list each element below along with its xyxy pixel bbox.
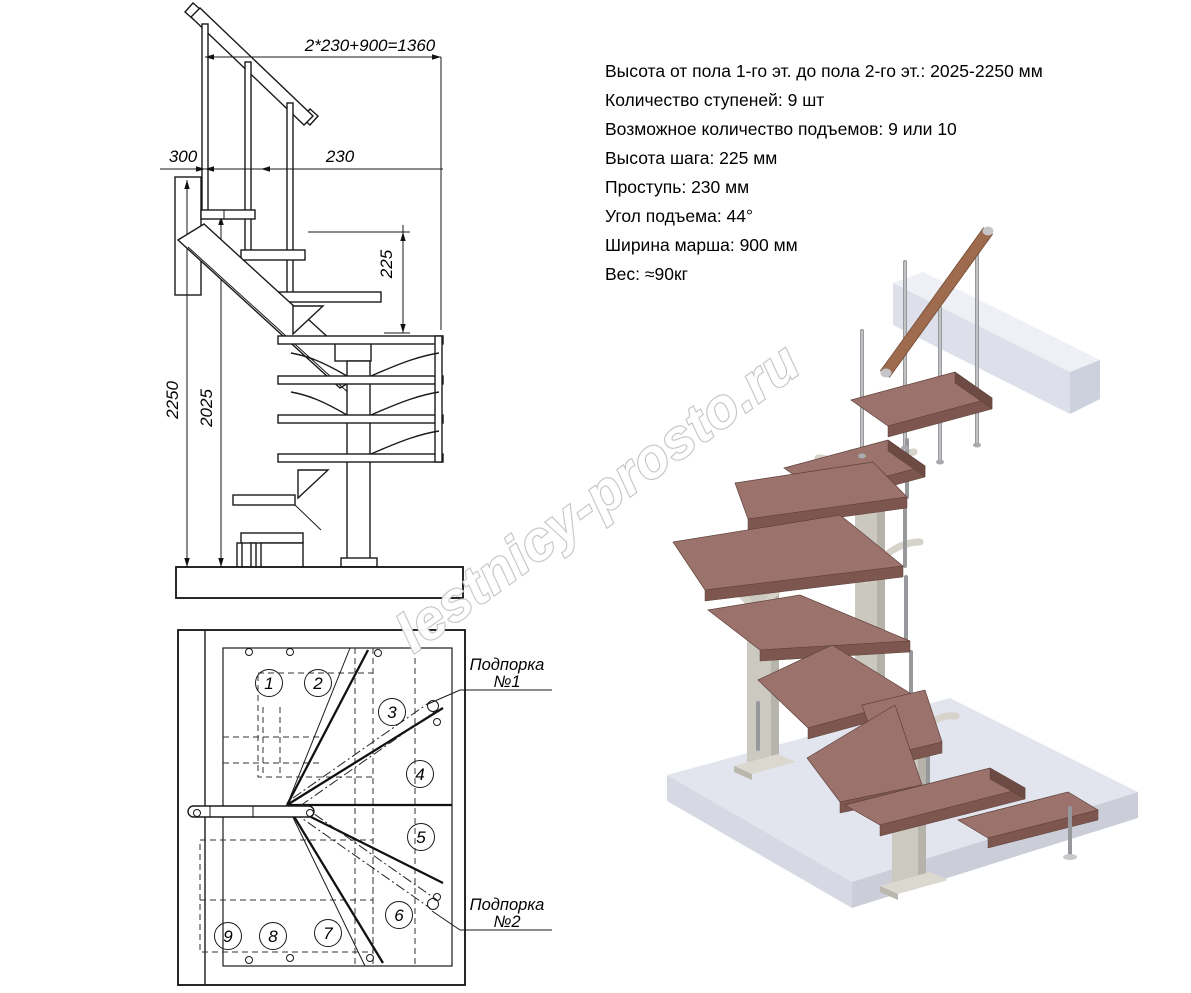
callout-1-line1: Подпорка bbox=[470, 656, 545, 674]
dim-label-2025: 2025 bbox=[197, 389, 216, 428]
dim-label-230: 230 bbox=[325, 147, 355, 166]
step-number-8: 8 bbox=[268, 927, 278, 946]
spec-line-tread: Проступь: 230 мм bbox=[605, 173, 1165, 202]
handrail-end-cap-lower bbox=[881, 369, 892, 378]
tread-9 bbox=[851, 372, 992, 437]
elevation-base-slab bbox=[176, 567, 463, 598]
spec-line-steps: Количество ступеней: 9 шт bbox=[605, 86, 1165, 115]
callout-1-line2: №1 bbox=[493, 673, 520, 691]
plan-callout-2: Подпорка №2 bbox=[432, 896, 552, 931]
callout-2-line2: №2 bbox=[493, 913, 520, 931]
step-number-7: 7 bbox=[323, 924, 333, 943]
plan-drawing: 1 2 3 4 5 6 7 8 9 Подпорка №1 Подпорка bbox=[160, 622, 570, 993]
step-number-4: 4 bbox=[415, 765, 424, 784]
dim-label-300: 300 bbox=[169, 147, 198, 166]
step-number-9: 9 bbox=[223, 927, 233, 946]
dim-label-2250: 2250 bbox=[163, 381, 182, 420]
spec-line-step-height: Высота шага: 225 мм bbox=[605, 144, 1165, 173]
step-number-3: 3 bbox=[387, 703, 397, 722]
elevation-dim-225: 225 bbox=[308, 225, 410, 333]
step-number-2: 2 bbox=[312, 674, 323, 693]
handrail-end-cap-upper bbox=[983, 227, 994, 236]
step-number-1: 1 bbox=[264, 674, 273, 693]
elevation-bottom-steps bbox=[233, 495, 321, 569]
dim-label-225: 225 bbox=[377, 249, 396, 279]
step-number-5: 5 bbox=[416, 828, 426, 847]
plan-handrail bbox=[188, 806, 314, 817]
spec-line-height: Высота от пола 1-го эт. до пола 2-го эт.… bbox=[605, 57, 1165, 86]
callout-2-line1: Подпорка bbox=[470, 896, 545, 914]
plan-callout-1: Подпорка №1 bbox=[428, 656, 552, 704]
render-3d bbox=[640, 200, 1191, 993]
spec-line-rises: Возможное количество подъемов: 9 или 10 bbox=[605, 115, 1165, 144]
dim-label-total-run: 2*230+900=1360 bbox=[304, 36, 436, 55]
elevation-drawing: 2*230+900=1360 300 230 2250 2025 bbox=[158, 0, 480, 612]
stair-drawing-page: 2*230+900=1360 300 230 2250 2025 bbox=[0, 0, 1191, 993]
step-number-6: 6 bbox=[394, 906, 404, 925]
